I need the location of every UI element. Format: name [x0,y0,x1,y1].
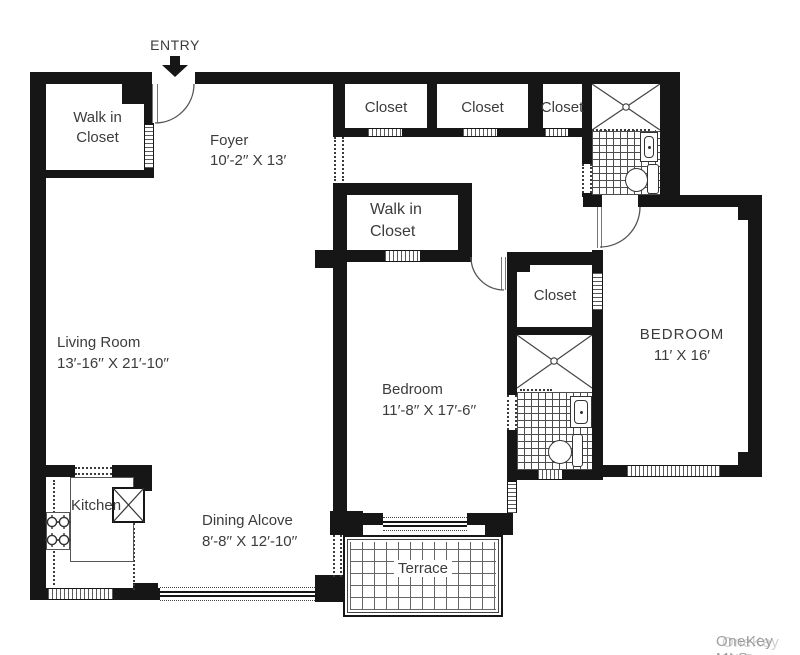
shower-icon [517,335,592,388]
watermark: OneKey MLS [716,633,800,655]
entry-door-swing [155,84,194,123]
room-label-closet-b: Closet [437,98,528,118]
room-name-line: Walk in [370,199,422,221]
room-name: Dining Alcove [202,510,297,531]
room-label-walkin-center: Walk in Closet [370,199,422,243]
room-label-bedroom-right: BEDROOM 11′ X 16′ [608,324,756,366]
room-dims: 11′-8′′ X 17′-6′′ [382,400,476,421]
room-label-foyer: Foyer 10′-2′′ X 13′ [210,131,286,171]
room-label-closet-right: Closet [517,286,593,306]
room-dims: 8′-8′′ X 12′-10′′ [202,531,297,552]
floor-plan: ENTRY Walk in Closet Foyer 10′-2′′ X 13′… [0,0,800,655]
entry-label: ENTRY [148,35,202,55]
room-name: Living Room [57,332,169,353]
room-label-closet-c: Closet [536,98,588,118]
bedroom-door-swing [600,207,640,247]
room-dims: 10′-2′′ X 13′ [210,151,286,171]
entry-arrow-icon [162,56,188,77]
room-label-closet-a: Closet [345,98,427,118]
room-name-line: Closet [50,128,145,148]
room-name: BEDROOM [608,324,756,345]
room-label-kitchen: Kitchen [71,496,121,516]
room-name: Foyer [210,131,286,151]
room-dims: 13′-16′′ X 21′-10′′ [57,353,169,374]
room-label-terrace: Terrace [343,559,503,579]
room-name: Terrace [394,560,452,577]
room-name-line: Closet [370,221,422,243]
room-label-bedroom-middle: Bedroom 11′-8′′ X 17′-6′′ [382,379,476,421]
stove-burners-icon [45,515,71,547]
room-label-dining-alcove: Dining Alcove 8′-8′′ X 12′-10′′ [202,510,297,552]
room-name: Bedroom [382,379,476,400]
bedroom-door-swing [471,257,504,290]
shower-icon [592,84,660,130]
room-name-line: Walk in [50,108,145,128]
room-label-living-room: Living Room 13′-16′′ X 21′-10′′ [57,332,169,374]
room-label-walkin-tl: Walk in Closet [50,108,145,148]
room-dims: 11′ X 16′ [608,345,756,366]
